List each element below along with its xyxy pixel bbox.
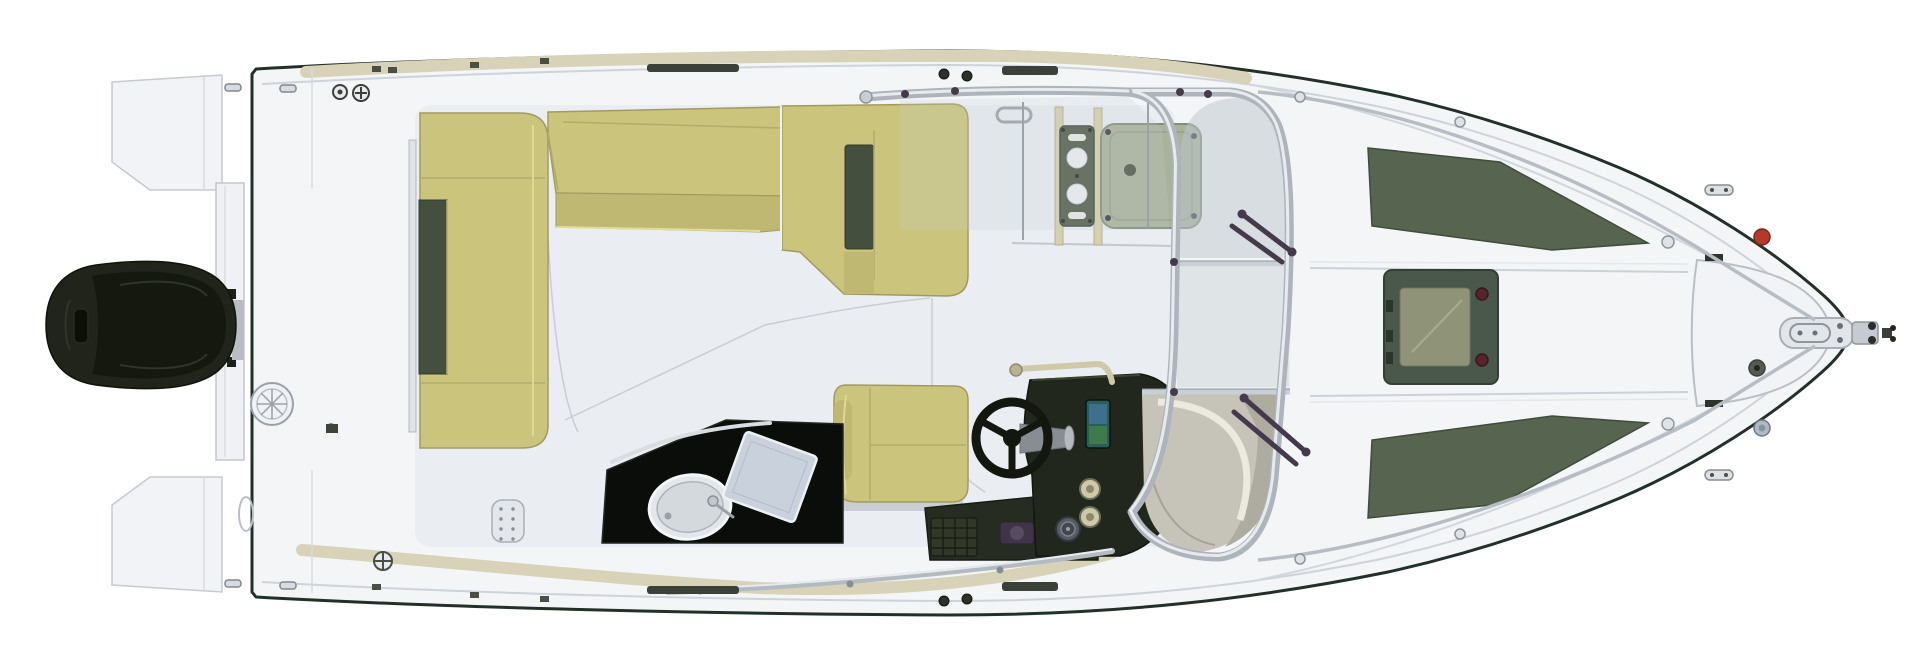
- engine-handle: [74, 309, 88, 343]
- drain-fitting: [374, 552, 392, 570]
- helm-seat: [833, 385, 968, 511]
- foredeck-hatch: [1384, 270, 1498, 384]
- anchor-windlass: [1780, 318, 1854, 348]
- boat-deck-plan: [0, 0, 1920, 657]
- throttle-panel: [931, 518, 977, 556]
- outboard-engine: [46, 261, 244, 388]
- aft-bench-backrest: [419, 200, 447, 374]
- step-grate: [492, 500, 524, 542]
- deck-plate-icon: [251, 383, 293, 425]
- swim-platform-starboard: [112, 477, 222, 592]
- windshield-glass-port: [900, 96, 1170, 230]
- console-speaker: [1056, 517, 1080, 541]
- engine-cowl-inner: [92, 272, 226, 379]
- windshield-glass-center: [1176, 266, 1290, 388]
- nav-light-port: [1754, 229, 1770, 245]
- swim-platform-port: [112, 75, 222, 190]
- copilot-backrest: [845, 145, 874, 249]
- hinge-fitting: [326, 424, 338, 433]
- port-bench-face: [556, 193, 782, 232]
- aft-bench: [409, 113, 548, 448]
- backrest-channel: [409, 140, 416, 432]
- chartplotter-screen: [1086, 400, 1110, 448]
- port-bench: [548, 107, 782, 232]
